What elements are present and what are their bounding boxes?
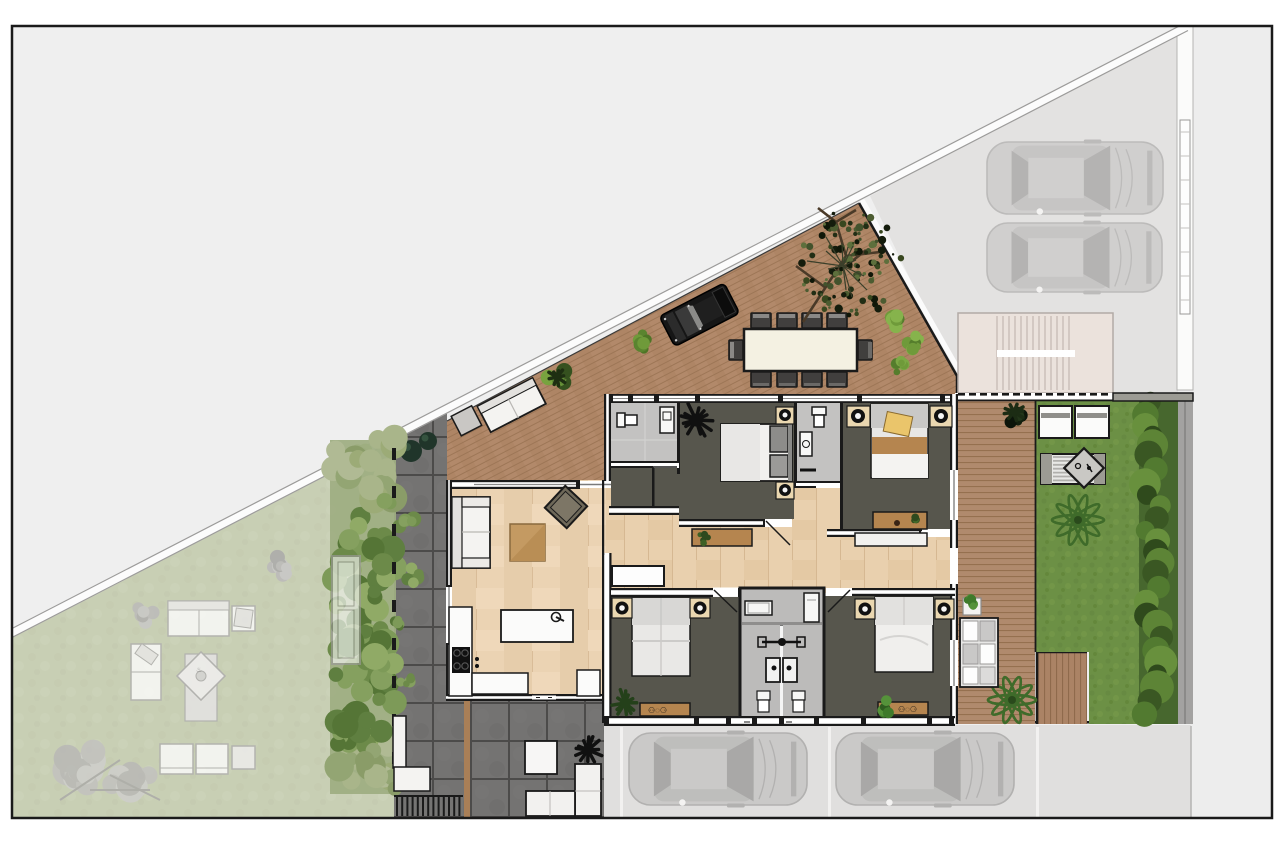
svg-text:♨: ♨	[196, 666, 202, 674]
svg-text:⚇◌⚆: ⚇◌⚆	[648, 706, 667, 715]
svg-text:⚇◌⚆: ⚇◌⚆	[898, 705, 917, 714]
